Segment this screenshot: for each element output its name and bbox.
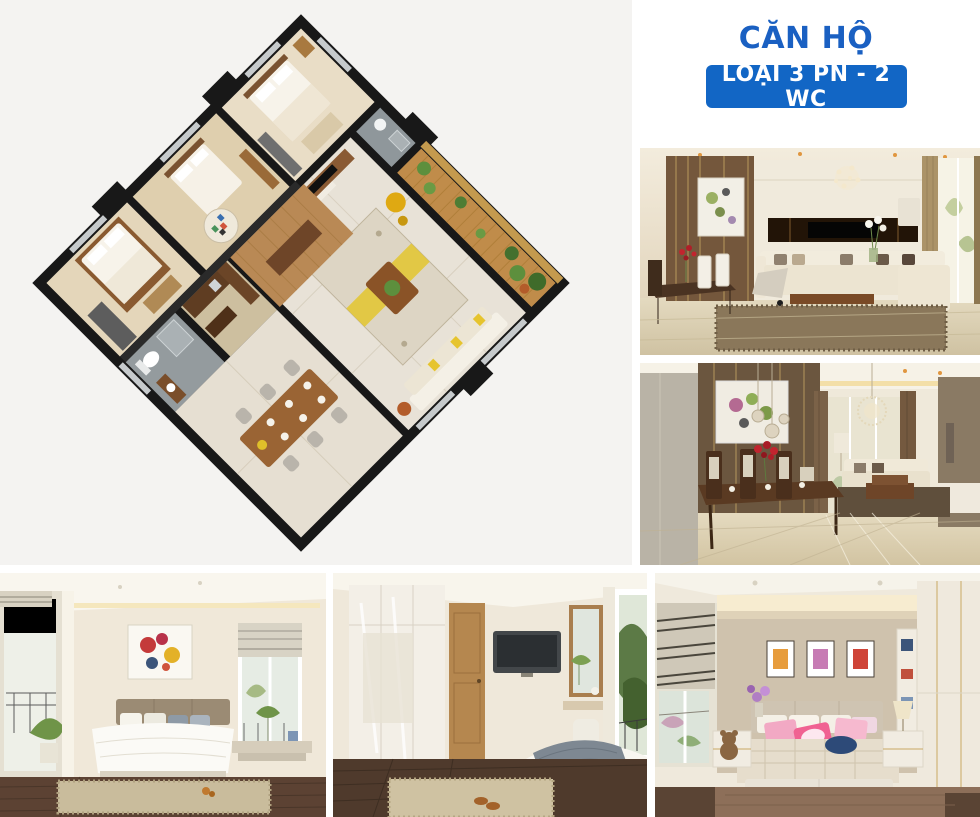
apartment-type-badge[interactable]: LOẠI 3 PN - 2 WC	[706, 65, 907, 108]
roman-shade	[238, 623, 302, 657]
window-left	[655, 603, 717, 767]
floor-plan-panel	[0, 0, 632, 565]
apartment-3d-floorplan	[0, 0, 632, 565]
bedroom-photo-3	[655, 573, 980, 817]
shag-rug	[389, 779, 553, 817]
framed-pictures	[767, 641, 874, 677]
page-title: CĂN HỘ	[739, 24, 873, 54]
header: CĂN HỘ LOẠI 3 PN - 2 WC	[632, 0, 980, 148]
carpet-floor	[655, 787, 980, 817]
shag-rug	[58, 781, 270, 813]
living-room-photo-1	[640, 148, 980, 355]
bedroom-photo-1	[0, 573, 326, 817]
door	[449, 603, 485, 759]
striped-roman-blind	[657, 603, 715, 689]
brochure-page: CĂN HỘ LOẠI 3 PN - 2 WC	[0, 0, 980, 817]
abstract-painting	[128, 625, 192, 679]
wardrobe-left	[349, 585, 445, 765]
glossy-panel-left	[640, 373, 698, 565]
balcony-door-left	[0, 591, 64, 779]
teddy-bear	[720, 730, 738, 760]
living-room-photo-2	[640, 363, 980, 565]
wall-tv	[493, 631, 561, 677]
wall-column	[62, 591, 74, 781]
balcony-window-right	[603, 587, 647, 763]
bedroom-photo-2	[333, 573, 647, 817]
wall-lamp	[898, 198, 920, 226]
wardrobe-right	[917, 581, 980, 795]
abstract-painting	[698, 178, 744, 236]
shag-rug	[716, 306, 946, 350]
